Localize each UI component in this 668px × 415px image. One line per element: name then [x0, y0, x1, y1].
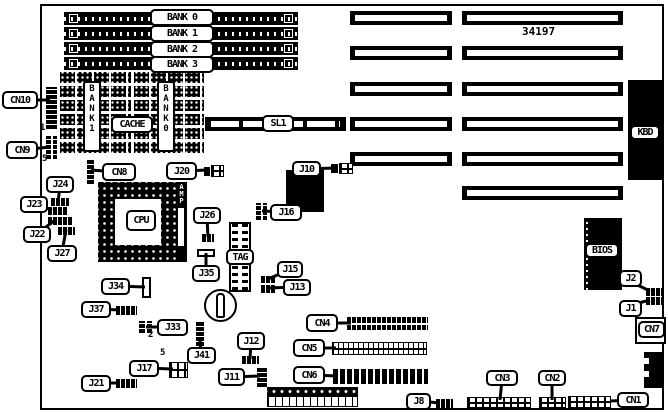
label-bank0: BANK 0 [150, 9, 214, 26]
label-j10: J10 [292, 161, 321, 177]
label-tag: TAG [226, 249, 254, 265]
label-j12: J12 [237, 332, 265, 350]
part-number: 34197 [522, 25, 555, 38]
label-sram-bank0: B A N K 0 [157, 81, 175, 152]
label-j37: J37 [81, 301, 111, 318]
pin1-marker-cn10: 1 [40, 123, 45, 133]
label-j20: J20 [166, 162, 197, 180]
label-j22: J22 [23, 226, 51, 243]
label-j26: J26 [193, 207, 221, 224]
pin2-marker-j33: 2 [148, 330, 153, 340]
label-j15: J15 [277, 261, 303, 278]
label-sram-bank1: B A N K 1 [83, 81, 101, 152]
label-j17: J17 [129, 360, 159, 377]
label-bank3: BANK 3 [150, 56, 214, 73]
callout-leader-lines [0, 0, 668, 415]
label-cn4: CN4 [306, 314, 338, 332]
label-bios: BIOS [585, 243, 619, 258]
label-j35: J35 [192, 265, 220, 282]
label-j27: J27 [47, 245, 77, 262]
label-j23: J23 [20, 196, 48, 213]
label-cn10: CN10 [2, 91, 38, 109]
label-cn8: CN8 [102, 163, 136, 181]
pin5-marker-j17: 5 [160, 348, 165, 358]
label-j2: J2 [619, 270, 642, 287]
label-j21: J21 [81, 375, 111, 392]
label-j1: J1 [619, 300, 642, 317]
label-j11: J11 [218, 368, 245, 386]
label-cn9: CN9 [6, 141, 38, 159]
label-j24: J24 [46, 176, 74, 193]
label-kbd: KBD [630, 125, 660, 140]
label-j41: J41 [187, 347, 216, 364]
label-bank1: BANK 1 [150, 25, 214, 42]
label-cpu: CPU [126, 210, 156, 231]
label-cn3: CN3 [486, 370, 518, 386]
label-cn6: CN6 [293, 366, 325, 384]
label-j34: J34 [101, 278, 130, 295]
label-sl1: SL1 [262, 115, 294, 132]
label-j33: J33 [157, 319, 188, 336]
motherboard-diagram: AMPCN10CN9J24J23J22J27CN8J20J26J35J34J37… [0, 0, 668, 415]
pin5-marker-cn9: 5 [42, 154, 47, 164]
label-j13: J13 [283, 279, 311, 296]
label-cn1: CN1 [617, 392, 649, 408]
label-cn7: CN7 [638, 321, 665, 338]
label-cache: CACHE [111, 116, 153, 133]
label-cn2: CN2 [538, 370, 566, 386]
label-cn5: CN5 [293, 339, 325, 357]
label-j8: J8 [406, 393, 431, 410]
label-j16: J16 [270, 204, 302, 221]
